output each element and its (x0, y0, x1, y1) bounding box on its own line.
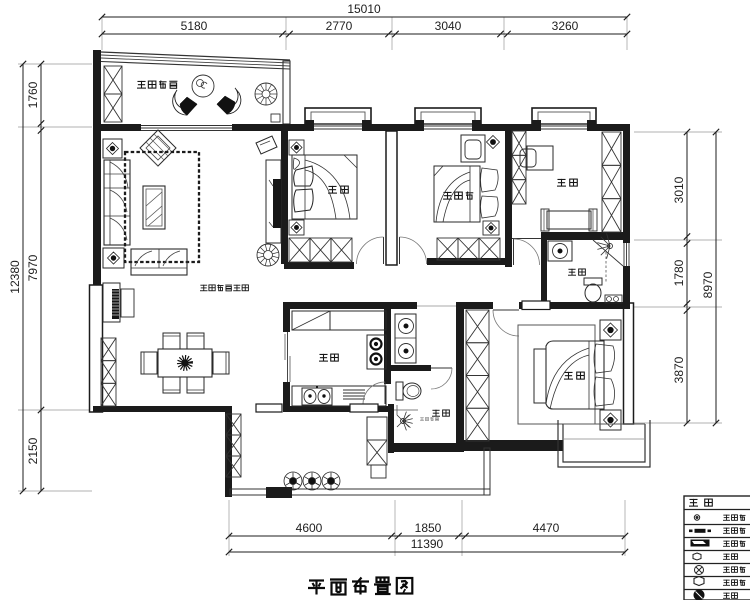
svg-text:3260: 3260 (552, 19, 579, 33)
svg-text:15010: 15010 (347, 2, 381, 16)
svg-text:1850: 1850 (415, 521, 442, 535)
svg-text:4470: 4470 (533, 521, 560, 535)
svg-text:2150: 2150 (26, 437, 40, 464)
svg-text:8970: 8970 (701, 271, 715, 298)
svg-text:7970: 7970 (26, 254, 40, 281)
svg-text:11390: 11390 (411, 537, 444, 551)
svg-text:1760: 1760 (26, 81, 40, 108)
svg-text:3870: 3870 (672, 356, 686, 383)
svg-text:3010: 3010 (672, 176, 686, 203)
svg-text:5180: 5180 (181, 19, 208, 33)
svg-text:1780: 1780 (672, 259, 686, 286)
svg-text:4600: 4600 (296, 521, 323, 535)
svg-text:2770: 2770 (326, 19, 353, 33)
svg-text:12380: 12380 (8, 260, 22, 294)
svg-text:3040: 3040 (435, 19, 462, 33)
